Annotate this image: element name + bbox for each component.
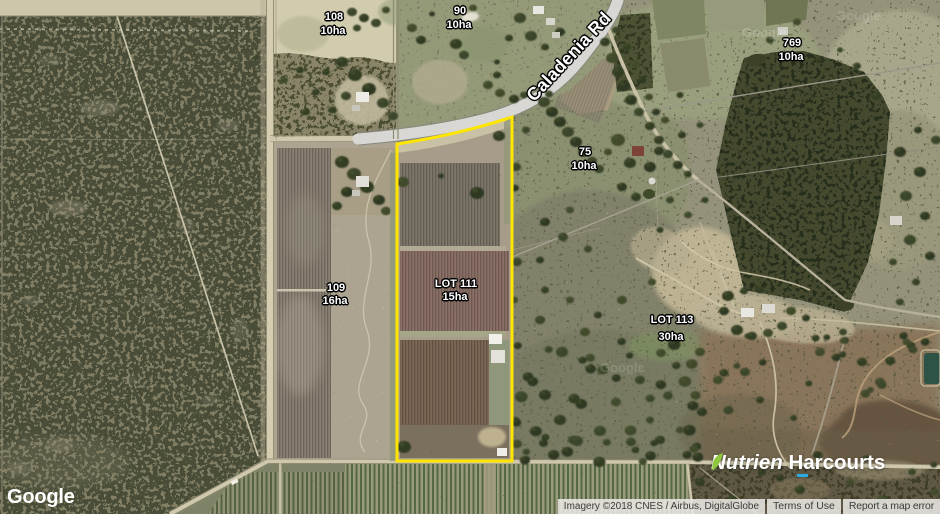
- svg-text:Google: Google: [836, 8, 881, 23]
- svg-text:Google: Google: [742, 25, 787, 40]
- svg-text:Google: Google: [600, 360, 645, 375]
